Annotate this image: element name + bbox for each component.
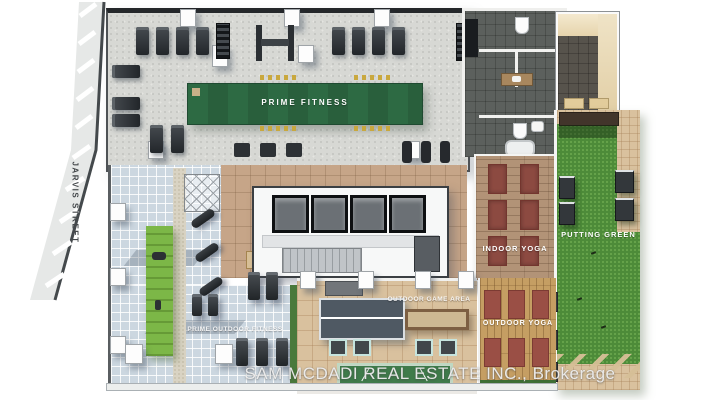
chair <box>329 339 347 356</box>
prime-outdoor-fitness-label: PRIME OUTDOOR FITNESS <box>160 326 310 333</box>
prime-fitness-room: PRIME FITNESS <box>106 8 470 172</box>
elevator <box>389 195 426 233</box>
bench <box>615 198 634 221</box>
treadmill <box>352 27 365 55</box>
outdoor-gym-equipment <box>236 338 248 366</box>
elevator-core <box>252 186 449 278</box>
sauna-bench <box>589 98 609 109</box>
stair-structure <box>184 174 220 212</box>
dumbbell-rack <box>216 23 230 59</box>
core-corridor <box>262 235 439 248</box>
turf-equipment <box>152 252 166 260</box>
stairwell <box>282 248 362 273</box>
wall-pier <box>358 271 374 289</box>
elevator <box>272 195 309 233</box>
pergola-shadow <box>559 125 617 138</box>
outdoor-gym-equipment <box>192 294 202 316</box>
treadmill <box>196 27 209 55</box>
spin-bike <box>402 141 412 163</box>
weight-bench <box>286 143 302 157</box>
cable-crossbar <box>261 39 289 46</box>
yoga-mat <box>484 338 501 367</box>
treadmill <box>176 27 189 55</box>
treadmill <box>136 27 149 55</box>
yoga-mat <box>488 200 507 230</box>
treadmill <box>112 65 140 78</box>
floor-plan: JARVIS STREET <box>0 0 720 400</box>
elevator <box>311 195 348 233</box>
shuffleboard-table <box>405 309 469 330</box>
treadmill-pair <box>150 125 184 153</box>
vanity-counter <box>501 73 533 86</box>
wall-pier <box>180 9 196 27</box>
spin-bike <box>440 141 450 163</box>
sauna-bench <box>564 98 584 109</box>
chair <box>415 339 433 356</box>
treadmill <box>112 114 140 127</box>
bench <box>615 170 634 193</box>
treadmill <box>112 97 140 110</box>
prime-fitness-label: PRIME FITNESS <box>188 98 422 107</box>
yoga-mat <box>532 338 549 367</box>
outdoor-gym-equipment <box>276 338 288 366</box>
spin-bike-row <box>402 141 450 163</box>
yoga-mat <box>484 290 501 319</box>
sauna-room <box>556 12 619 116</box>
washrooms <box>462 8 567 157</box>
fitness-turf: PRIME FITNESS <box>187 83 423 125</box>
chair <box>439 339 457 356</box>
indoor-yoga-label: INDOOR YOGA <box>476 244 554 253</box>
left-wall-treadmills <box>112 65 140 127</box>
pergola <box>559 112 619 126</box>
treadmill <box>156 27 169 55</box>
weight-bench <box>260 143 276 157</box>
treadmill <box>150 125 163 153</box>
turf-equipment <box>155 300 161 310</box>
wall-pier <box>215 344 233 364</box>
outdoor-yoga-label: OUTDOOR YOGA <box>480 320 556 327</box>
wall-pier <box>300 271 316 289</box>
bench <box>559 202 575 225</box>
dumbbell-row-yellow <box>260 75 300 80</box>
wall-pier <box>374 9 390 27</box>
wall-pier <box>110 336 126 354</box>
yoga-mat <box>520 200 539 230</box>
sink <box>531 121 544 132</box>
outdoor-gym-equipment <box>208 294 218 316</box>
chair <box>353 339 371 356</box>
cable-machine <box>256 25 294 61</box>
exterior-wall <box>106 383 558 391</box>
outdoor-gym-equipment <box>256 338 268 366</box>
indoor-yoga-room: INDOOR YOGA <box>474 154 556 282</box>
treadmill <box>392 27 405 55</box>
wall-pier <box>110 268 126 286</box>
wall-pier <box>125 344 143 364</box>
wall-pier <box>415 271 431 289</box>
outdoor-gym-equipment <box>248 272 260 300</box>
toilet <box>515 17 529 34</box>
yoga-mat <box>508 290 525 319</box>
wall <box>479 115 565 118</box>
toilet <box>513 123 527 139</box>
wall-pier <box>458 271 474 289</box>
wall <box>479 49 565 52</box>
wall-pier <box>298 45 314 63</box>
outdoor-gym-equipment <box>266 272 278 300</box>
weight-bench-group <box>234 143 302 157</box>
dumbbell-row-yellow <box>354 75 390 80</box>
service-room <box>414 236 440 272</box>
yoga-mat <box>508 338 525 367</box>
treadmill-row <box>332 27 405 55</box>
treadmill <box>332 27 345 55</box>
yoga-mat <box>532 290 549 319</box>
putting-turf <box>557 232 640 364</box>
dumbbell-row-yellow <box>354 126 390 131</box>
brokerage-watermark: SAM MCDADI REAL ESTATE INC., Brokerage <box>140 364 720 384</box>
spin-bike <box>421 141 431 163</box>
yoga-mat <box>520 164 539 194</box>
putting-green-area: PUTTING GREEN <box>554 110 640 390</box>
treadmill <box>372 27 385 55</box>
ping-pong-table <box>319 298 405 340</box>
ping-pong-centerline <box>321 317 403 319</box>
bench <box>559 176 575 199</box>
treadmill-row <box>136 27 209 55</box>
wall-pier <box>110 203 126 221</box>
treadmill <box>171 125 184 153</box>
street-label: JARVIS STREET <box>71 143 80 263</box>
locker-shelf <box>465 19 478 57</box>
putting-green-label: PUTTING GREEN <box>557 230 640 239</box>
plate-box <box>192 88 200 96</box>
yoga-mat <box>488 164 507 194</box>
elevator <box>350 195 387 233</box>
dumbbell-row-yellow <box>260 126 300 131</box>
sink <box>512 76 521 82</box>
outdoor-turf-strip <box>146 226 173 356</box>
outdoor-game-area-label: OUTDOOR GAME AREA <box>381 296 477 303</box>
weight-bench <box>234 143 250 157</box>
